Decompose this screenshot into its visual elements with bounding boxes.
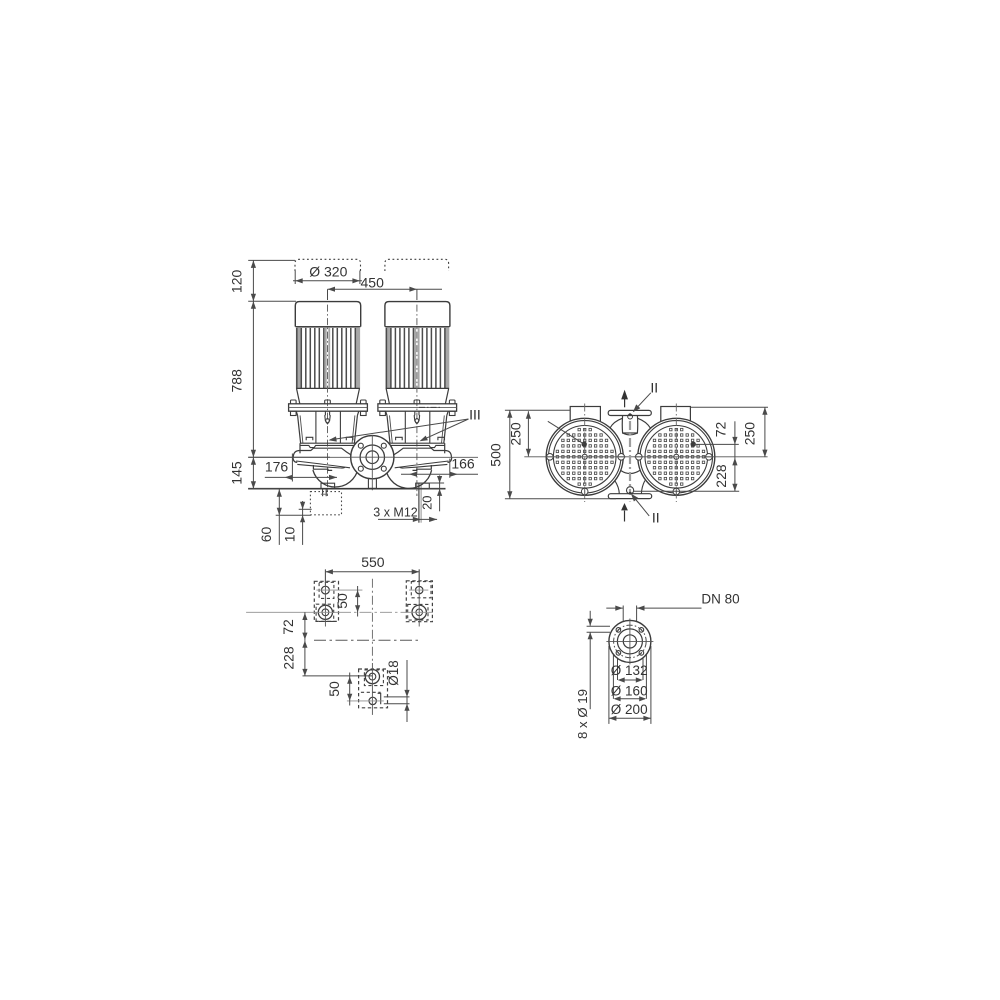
svg-text:3 x M12: 3 x M12: [373, 506, 418, 520]
svg-text:228: 228: [713, 464, 729, 488]
svg-text:Ø 160: Ø 160: [611, 684, 648, 699]
svg-text:50: 50: [334, 593, 350, 609]
svg-text:450: 450: [361, 274, 385, 290]
svg-text:20: 20: [420, 495, 435, 509]
svg-text:Ø 200: Ø 200: [611, 702, 648, 717]
svg-text:50: 50: [326, 681, 342, 697]
svg-text:II: II: [652, 509, 660, 525]
svg-text:8 x Ø 19: 8 x Ø 19: [575, 689, 590, 739]
svg-text:60: 60: [258, 527, 274, 543]
svg-text:III: III: [469, 406, 481, 422]
svg-text:250: 250: [742, 422, 758, 446]
svg-text:10: 10: [281, 527, 297, 543]
svg-text:145: 145: [229, 461, 245, 485]
svg-text:788: 788: [229, 369, 245, 393]
svg-text:II: II: [650, 379, 658, 395]
svg-text:Ø 132: Ø 132: [611, 663, 648, 678]
svg-text:550: 550: [361, 554, 385, 570]
svg-text:72: 72: [280, 619, 296, 635]
svg-text:228: 228: [280, 646, 296, 670]
svg-text:Ø18: Ø18: [386, 660, 401, 686]
svg-text:Ø 320: Ø 320: [309, 263, 347, 279]
svg-text:500: 500: [487, 443, 503, 467]
svg-text:166: 166: [451, 455, 475, 471]
svg-text:250: 250: [508, 422, 524, 446]
svg-text:72: 72: [713, 422, 729, 438]
svg-text:DN 80: DN 80: [701, 591, 739, 606]
svg-text:120: 120: [229, 270, 245, 294]
svg-text:176: 176: [265, 459, 289, 475]
